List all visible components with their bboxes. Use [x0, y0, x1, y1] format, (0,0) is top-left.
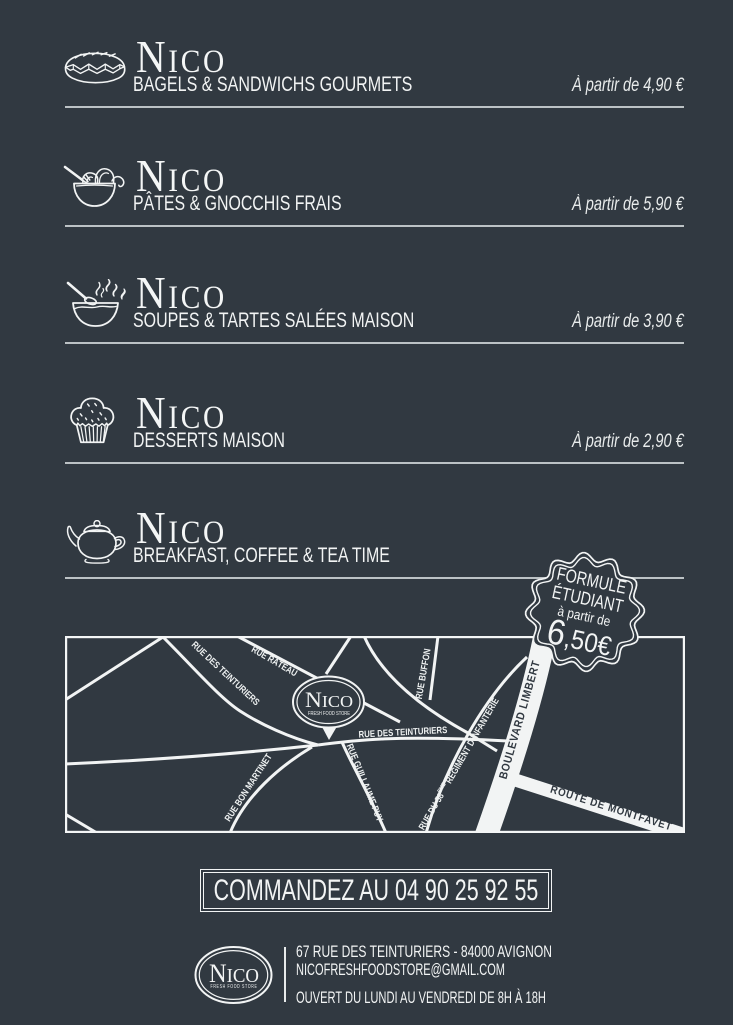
svg-text:FRESH FOOD STORE: FRESH FOOD STORE	[211, 984, 258, 990]
svg-text:FRESH FOOD STORE: FRESH FOOD STORE	[308, 711, 351, 717]
